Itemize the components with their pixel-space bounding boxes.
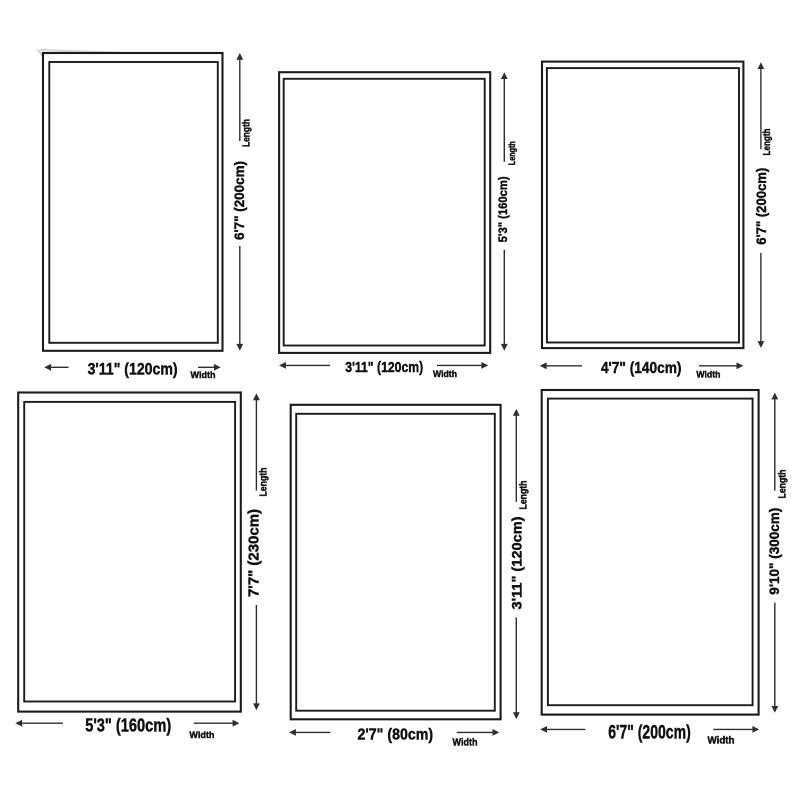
svg-text:Length: Length	[507, 141, 517, 165]
svg-text:5'3" (160cm): 5'3" (160cm)	[496, 176, 510, 242]
svg-text:6'7" (200cm): 6'7" (200cm)	[232, 161, 247, 240]
svg-text:3'11" (120cm): 3'11" (120cm)	[88, 359, 178, 378]
svg-text:6'7" (200cm): 6'7" (200cm)	[754, 168, 769, 245]
svg-text:Width: Width	[433, 369, 457, 380]
svg-text:2'7" (80cm): 2'7" (80cm)	[358, 727, 434, 744]
svg-text:Length: Length	[762, 129, 773, 156]
svg-text:Length: Length	[519, 481, 530, 510]
svg-text:9'10" (300cm): 9'10" (300cm)	[767, 508, 782, 595]
svg-text:Width: Width	[453, 738, 478, 749]
svg-text:6'7" (200cm): 6'7" (200cm)	[608, 723, 691, 744]
svg-text:Length: Length	[241, 119, 252, 147]
svg-text:Length: Length	[259, 468, 270, 497]
svg-text:5'3" (160cm): 5'3" (160cm)	[85, 715, 171, 735]
svg-text:7'7" (230cm): 7'7" (230cm)	[246, 509, 262, 597]
svg-text:Width: Width	[708, 736, 735, 747]
svg-text:4'7" (140cm): 4'7" (140cm)	[601, 360, 682, 377]
svg-text:3'11" (120cm): 3'11" (120cm)	[345, 359, 423, 376]
svg-text:Width: Width	[189, 730, 214, 741]
svg-text:3'11" (120cm): 3'11" (120cm)	[509, 517, 525, 610]
svg-text:Length: Length	[778, 470, 789, 499]
svg-text:Width: Width	[696, 370, 720, 381]
svg-text:Width: Width	[191, 370, 216, 380]
